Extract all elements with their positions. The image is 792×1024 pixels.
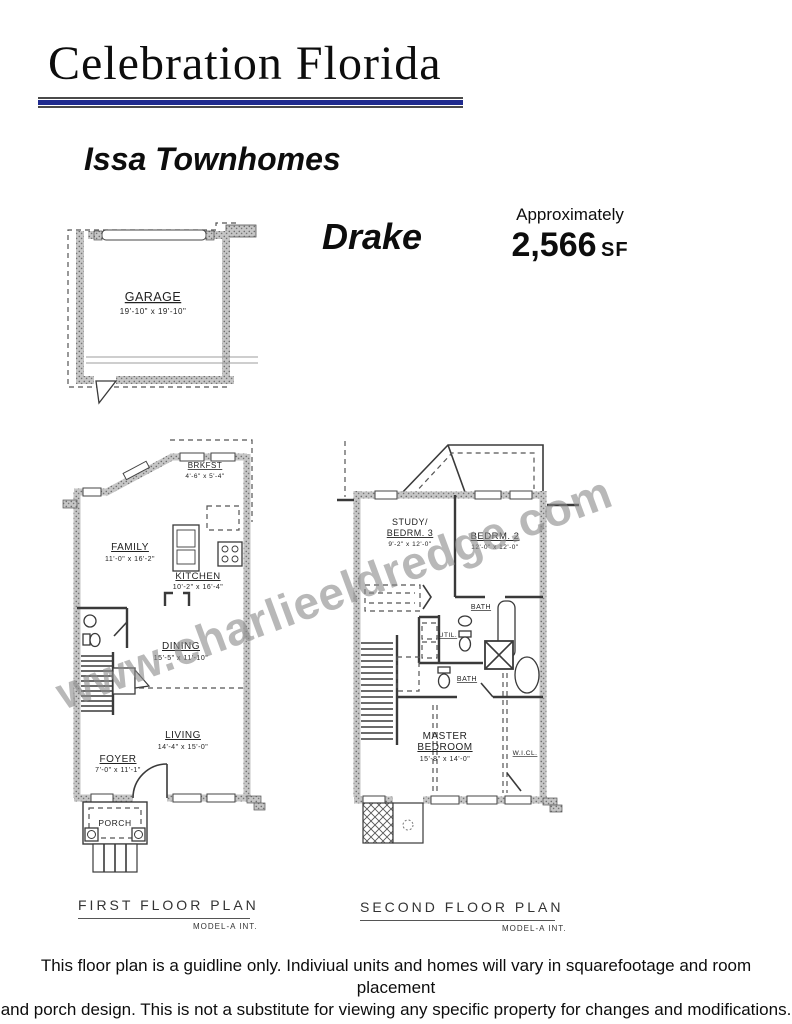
garage-door [94,230,214,240]
brkfst-dims: 4'-6" x 5'-4" [185,473,224,480]
porch-label: PORCH [98,818,131,828]
bath-upper-label: BATH [471,604,491,611]
pantry-dashed [207,506,239,530]
utility-appliances [422,623,437,658]
square-footage-value: 2,566 [511,226,596,264]
garage-outline [68,223,256,387]
kitchen-entry-walls [165,593,189,606]
model-name: Drake [322,216,422,258]
garage-plan: GARAGE 19'-10" x 19'-10" [58,215,270,410]
roof-outline [345,441,543,497]
divider-navy-line [38,100,463,105]
garage-dims: 19'-10" x 19'-10" [120,307,187,316]
garage-label: GARAGE [125,290,182,304]
foyer-dims: 7'-0" x 11'-1" [95,767,141,774]
family-dims: 11'-0" x 16'-2" [105,556,155,563]
floorplan-flyer-page: Celebration Florida Issa Townhomes Drake… [0,0,792,1024]
study-label-line1: STUDY/ [392,517,428,527]
garage-entry-door [96,381,116,403]
first-floor-caption: FIRST FLOOR PLAN [78,897,250,919]
family-label: FAMILY [111,542,149,553]
disclaimer-line2: and porch design. This is not a substitu… [0,999,792,1021]
bath-lower-label: BATH [457,676,477,683]
driveway-apron-lines [86,357,258,363]
wicl-label: W.I.CL. [513,750,538,757]
first-floor-model-note: MODEL-A INT. [193,922,257,931]
living-dims: 14'-4" x 15'-0" [158,744,209,751]
title-divider [38,97,463,108]
shower-stall [485,641,513,669]
community-title: Issa Townhomes [84,141,341,178]
square-footage-unit: SF [601,239,629,261]
divider-bottom-line [38,106,463,108]
master-label-line1: MASTER [423,731,468,742]
brkfst-label: BRKFST [188,461,223,470]
divider-top-line [38,97,463,99]
kitchen-dims: 10'-2" x 16'-4" [173,584,224,591]
disclaimer-line1: This floor plan is a guidline only. Indi… [0,955,792,999]
kitchen-label: KITCHEN [175,571,220,582]
brand-title: Celebration Florida [48,36,442,91]
master-dims: 15'-8" x 14'-0" [420,756,471,763]
foyer-label: FOYER [100,754,137,765]
second-floor-caption: SECOND FLOOR PLAN [360,899,555,921]
square-footage-block: Approximately 2,566 SF [495,205,645,265]
kitchen-island [173,525,199,571]
disclaimer: This floor plan is a guidline only. Indi… [0,955,792,1021]
balcony-deck [363,803,423,843]
second-floor-model-note: MODEL-A INT. [502,924,566,933]
master-label-line2: BEDROOM [417,742,472,753]
porch [83,802,147,872]
second-floor-stairs [361,643,419,739]
stove-icon [218,542,242,566]
living-label: LIVING [165,730,201,741]
approximately-label: Approximately [495,205,645,225]
util-label: UTIL. [439,632,457,639]
